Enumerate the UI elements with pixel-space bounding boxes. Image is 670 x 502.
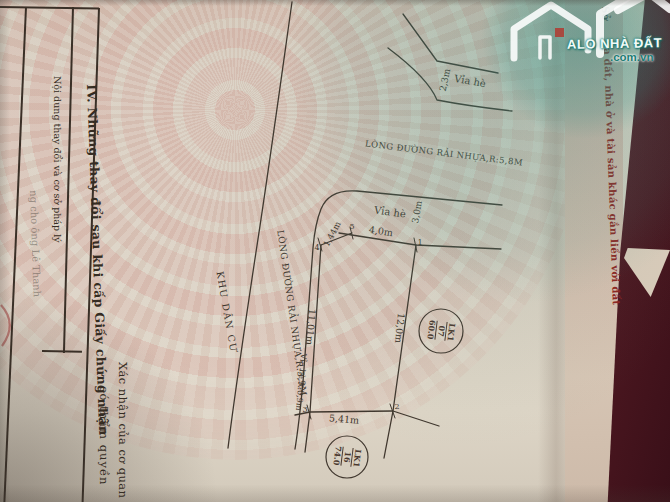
photo-land-certificate: Nội dung thay đổi và cơ sở pháp lý IV. N… <box>0 0 670 502</box>
photo-vignette <box>0 0 670 502</box>
